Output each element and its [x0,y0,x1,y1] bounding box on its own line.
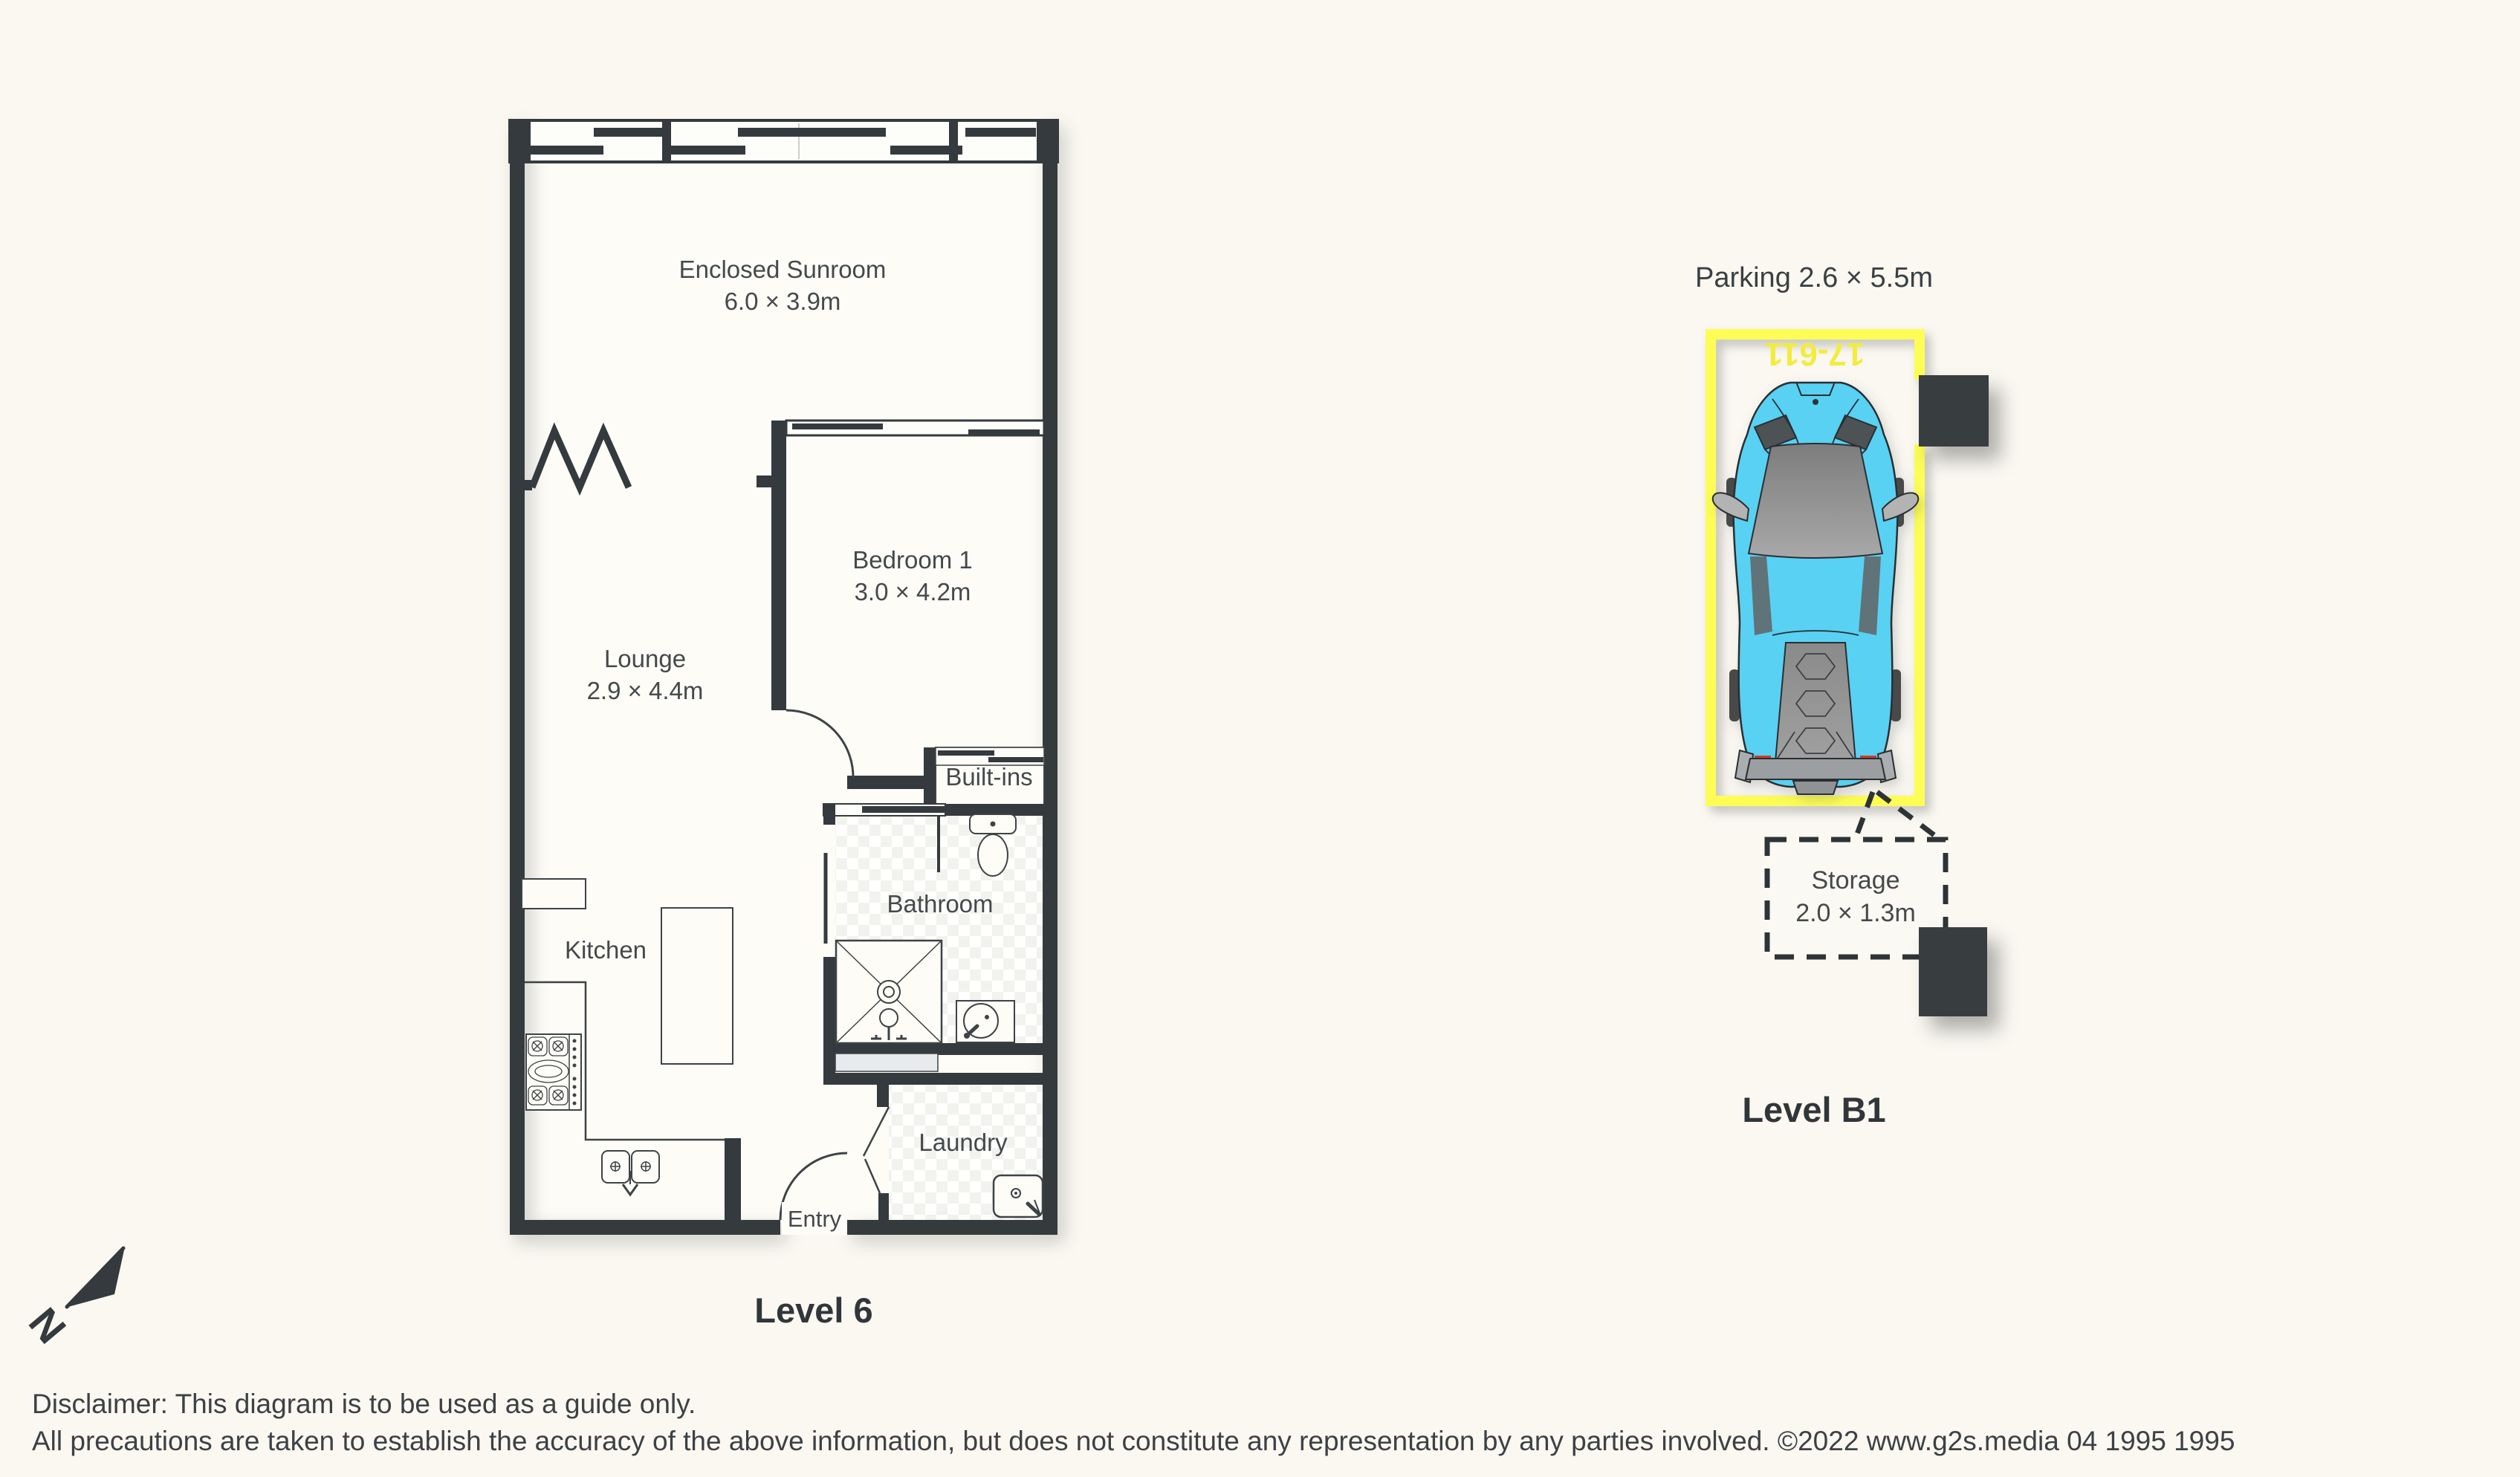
window-band-top [510,120,1057,162]
room-dims-bedroom: 3.0 × 4.2m [855,578,971,606]
levelb1-label: Level B1 [1742,1090,1885,1129]
north-arrow-icon: N [20,1247,125,1352]
room-label-sunroom: Enclosed Sunroom [679,256,887,283]
floorplan-level6: Enclosed Sunroom 6.0 × 3.9m Bedroom 1 3.… [510,120,1057,1330]
wall-nib [757,475,771,487]
bay-number-label: 17-611 [1765,336,1865,372]
structural-column-upper [1919,375,1989,447]
storage-label: Storage [1811,866,1899,895]
window-band-bedroom [786,421,1044,435]
room-label-lounge: Lounge [604,645,686,672]
bench-niche [835,1054,938,1071]
fridge-space [522,879,586,909]
level6-label: Level 6 [754,1291,872,1330]
disclaimer-line2: All precautions are taken to establish t… [32,1426,2235,1456]
room-label-entry: Entry [788,1206,842,1232]
room-label-bathroom: Bathroom [887,890,993,918]
vanity-basin-icon [956,1001,1014,1042]
parking-level-b1: Parking 2.6 × 5.5m 17-611 [1695,262,1989,1129]
room-label-bedroom: Bedroom 1 [852,546,972,574]
kitchen-island [661,908,733,1064]
disclaimer-line1: Disclaimer: This diagram is to be used a… [32,1389,696,1419]
bathroom-area [823,804,1044,1085]
structural-column-lower [1919,927,1987,1016]
room-dims-lounge: 2.9 × 4.4m [587,677,704,704]
bedroom-left-wall [771,421,786,710]
parking-title: Parking 2.6 × 5.5m [1695,262,1933,293]
cooktop-icon [526,1034,581,1110]
floorplan-page: Enclosed Sunroom 6.0 × 3.9m Bedroom 1 3.… [0,0,2520,1477]
room-label-builtins: Built-ins [945,763,1032,791]
storage-dims: 2.0 × 1.3m [1795,899,1916,927]
room-label-kitchen: Kitchen [565,936,647,964]
laundry-tub-icon [994,1175,1043,1217]
shower-icon [836,941,942,1043]
room-label-laundry: Laundry [919,1129,1008,1156]
bedroom-bottom-wall [847,776,935,789]
room-dims-sunroom: 6.0 × 3.9m [725,288,841,315]
car-top-view-icon [1713,382,1919,794]
